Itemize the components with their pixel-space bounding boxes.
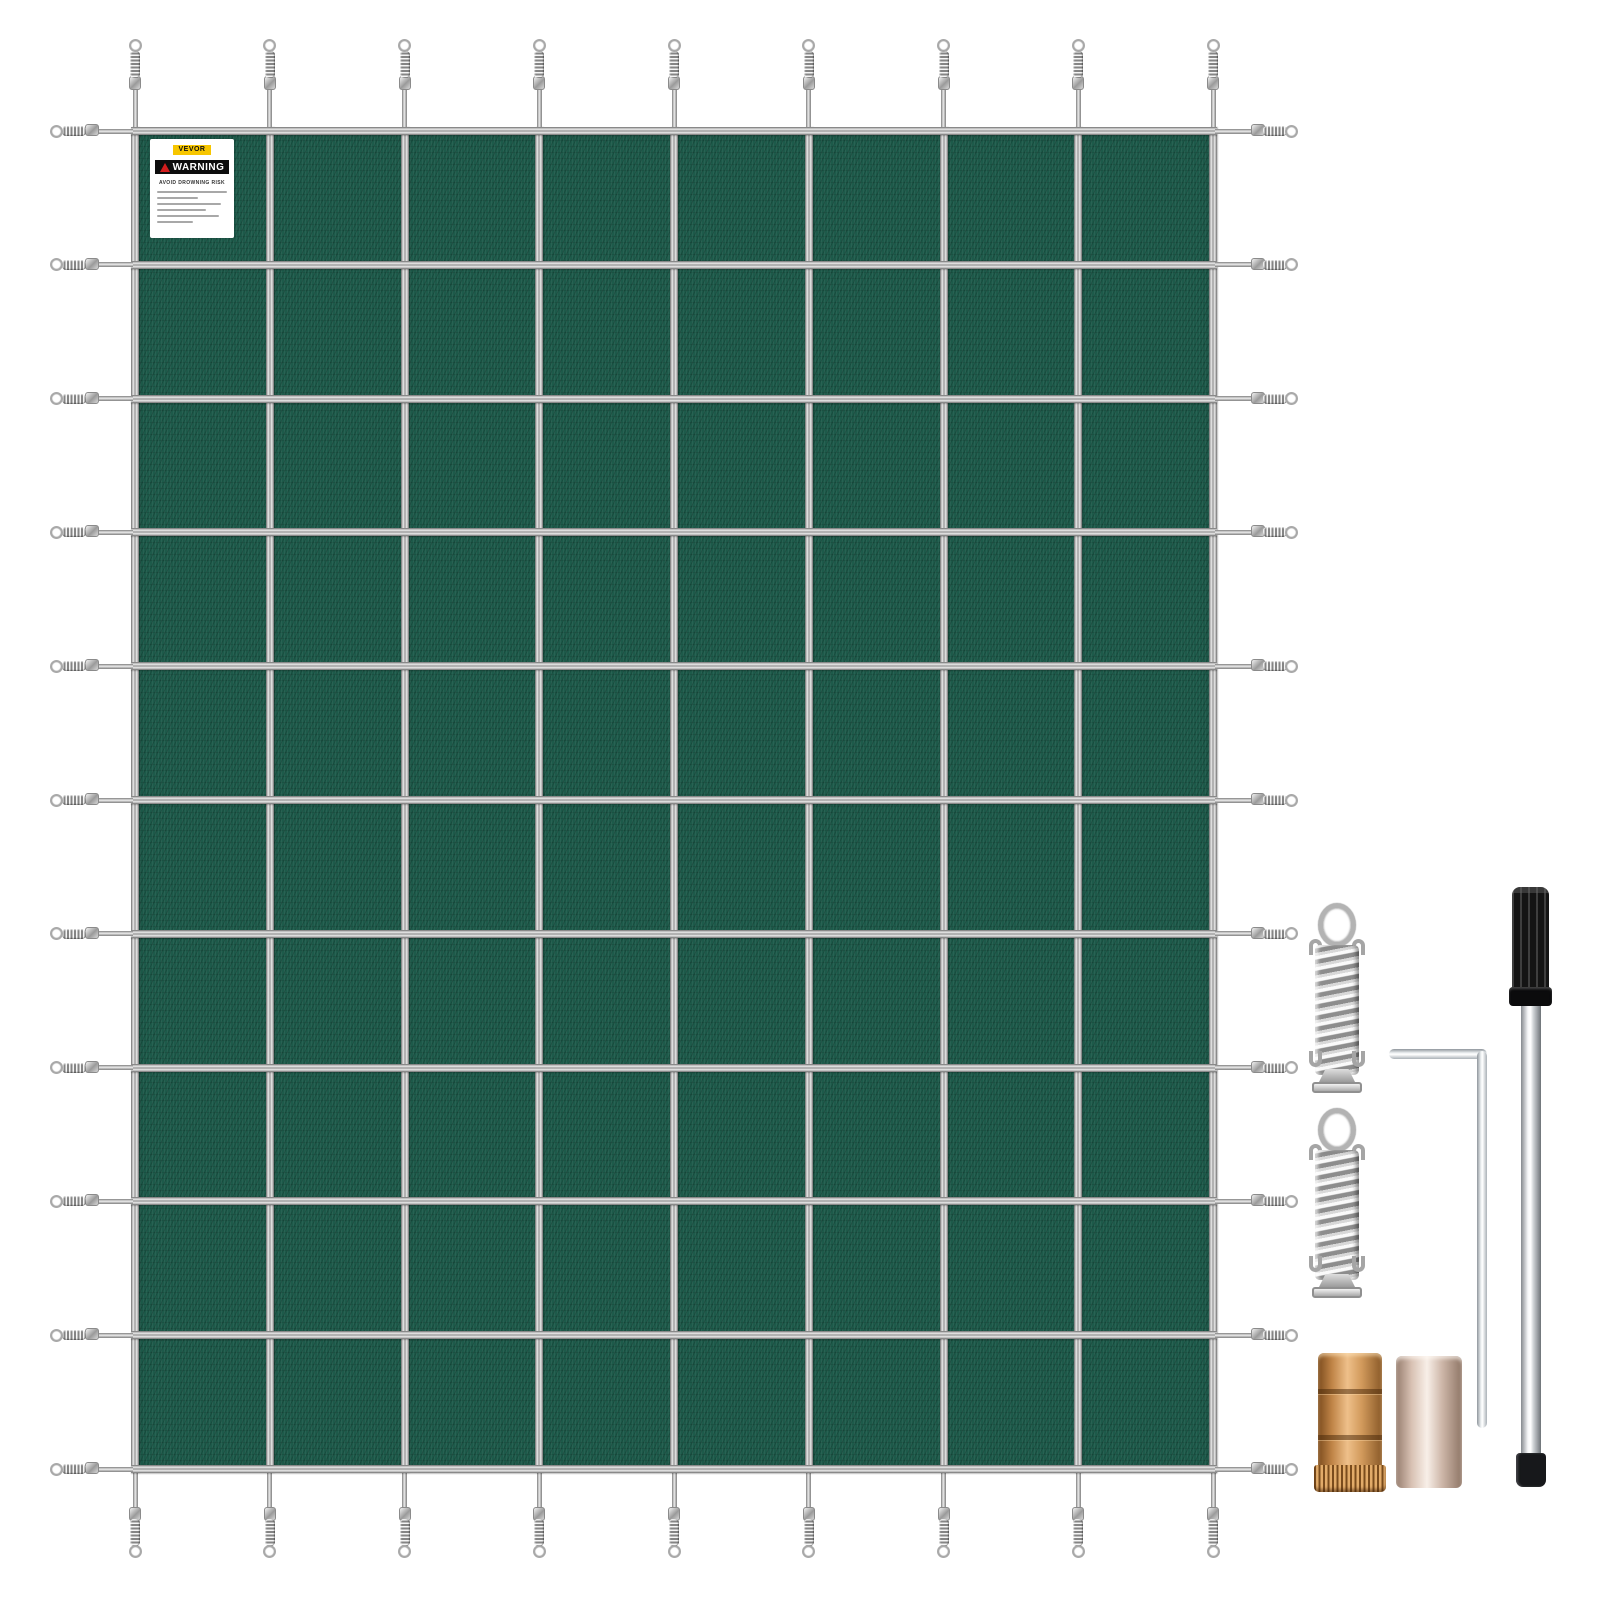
spring-clip xyxy=(129,76,141,90)
warning-banner: WARNING xyxy=(155,160,229,174)
strap-horizontal xyxy=(131,796,1217,804)
spring-coil xyxy=(1263,1330,1287,1340)
fine-print-line xyxy=(157,221,193,223)
spring-clip xyxy=(85,525,99,537)
fine-print-line xyxy=(157,197,198,199)
spring-coil xyxy=(62,1063,86,1073)
spring-coil xyxy=(804,51,814,78)
spring-strap xyxy=(537,88,542,130)
spring-coil xyxy=(1208,51,1218,78)
spring-clip xyxy=(533,76,545,90)
spring-clip xyxy=(85,1462,99,1474)
spring-strap xyxy=(133,88,138,130)
spring-clip xyxy=(85,1194,99,1206)
spring-ring xyxy=(50,794,63,807)
spring-coil xyxy=(1263,260,1287,270)
spring-clip xyxy=(85,1328,99,1340)
spring-ring xyxy=(937,1545,950,1558)
spring-strap xyxy=(97,129,133,134)
strap-horizontal xyxy=(131,528,1217,536)
spring-strap xyxy=(1215,530,1253,535)
spring-buckle xyxy=(1312,1287,1362,1298)
spring-clip xyxy=(1207,76,1219,90)
spring-strap xyxy=(806,1471,811,1509)
spring-strap xyxy=(1215,396,1253,401)
strap-horizontal xyxy=(131,1331,1217,1339)
spring-clip xyxy=(399,76,411,90)
spring-strap xyxy=(1215,1333,1253,1338)
spring-coil xyxy=(1073,1519,1083,1546)
strap-horizontal xyxy=(131,1465,1217,1473)
spring-coil xyxy=(62,394,86,404)
warning-triangle-icon xyxy=(160,163,170,172)
spring-strap xyxy=(1215,931,1253,936)
spring-ring xyxy=(50,1329,63,1342)
spring-clip xyxy=(85,258,99,270)
spring-coil xyxy=(62,661,86,671)
strap-horizontal xyxy=(131,1197,1217,1205)
rod-collar xyxy=(1509,987,1552,1006)
spring-ring xyxy=(1072,1545,1085,1558)
spring-strap xyxy=(1215,129,1253,134)
fine-print-line xyxy=(157,203,221,205)
spring-ring xyxy=(802,39,815,52)
spring-ring xyxy=(1285,1195,1298,1208)
spring-coil xyxy=(1208,1519,1218,1546)
spring-ring xyxy=(533,1545,546,1558)
spring-coil xyxy=(1263,661,1287,671)
spring-ring xyxy=(1072,39,1085,52)
spring-strap xyxy=(97,931,133,936)
product-image: VEVOR WARNING AVOID DROWNING RISK xyxy=(0,0,1600,1600)
spring-strap xyxy=(1215,798,1253,803)
spring-ring xyxy=(1285,1061,1298,1074)
spring-ring xyxy=(1285,125,1298,138)
warning-label: VEVOR WARNING AVOID DROWNING RISK xyxy=(150,139,234,238)
brand-badge: VEVOR xyxy=(173,145,211,155)
spring-hook xyxy=(1309,1256,1322,1272)
spring-clip xyxy=(85,793,99,805)
anchor-groove xyxy=(1318,1435,1382,1440)
strap-horizontal xyxy=(131,1064,1217,1072)
spring-strap xyxy=(402,88,407,130)
spring-strap xyxy=(672,88,677,130)
spring-strap xyxy=(97,798,133,803)
spring-strap xyxy=(97,262,133,267)
spring-strap xyxy=(1215,664,1253,669)
brass-anchor-knurled-base xyxy=(1314,1465,1386,1492)
spring-hook xyxy=(1309,1051,1322,1067)
spring-ring xyxy=(1285,660,1298,673)
spring-strap xyxy=(97,1467,133,1472)
spring-strap xyxy=(1211,1471,1216,1509)
spring-coil xyxy=(130,1519,140,1546)
spring-strap xyxy=(97,1065,133,1070)
spring-coil xyxy=(400,1519,410,1546)
spring-coil xyxy=(669,1519,679,1546)
spring-ring xyxy=(668,39,681,52)
hex-key-arm xyxy=(1389,1049,1487,1059)
hex-key-shaft xyxy=(1477,1051,1487,1428)
spring-coil xyxy=(1263,929,1287,939)
spring-coil xyxy=(62,795,86,805)
spring-ring xyxy=(263,1545,276,1558)
spring-ring xyxy=(1207,39,1220,52)
spring-strap xyxy=(97,1199,133,1204)
spring-ring xyxy=(50,258,63,271)
rod-tip xyxy=(1516,1453,1546,1487)
spring-clip xyxy=(85,659,99,671)
warning-subtitle: AVOID DROWNING RISK xyxy=(150,180,234,186)
spring-coil xyxy=(1263,1196,1287,1206)
spring-coil xyxy=(534,1519,544,1546)
spring-ring xyxy=(398,39,411,52)
spring-coil xyxy=(62,1330,86,1340)
fine-print-line xyxy=(157,191,227,193)
spring-coil xyxy=(1263,527,1287,537)
fine-print-line xyxy=(157,209,206,211)
brass-anchor-body xyxy=(1318,1353,1382,1467)
spring-coil xyxy=(534,51,544,78)
spring-clip xyxy=(1072,76,1084,90)
spring-coil xyxy=(265,51,275,78)
spring-ring xyxy=(533,39,546,52)
warning-title: WARNING xyxy=(173,162,225,173)
spring-strap xyxy=(97,664,133,669)
spring-ring xyxy=(50,1061,63,1074)
spring-coil xyxy=(62,260,86,270)
spring-coil xyxy=(62,527,86,537)
spring-strap xyxy=(1215,1199,1253,1204)
spring-ring xyxy=(1285,1463,1298,1476)
spring-strap xyxy=(1215,1065,1253,1070)
spring-ring xyxy=(129,1545,142,1558)
spring-ring xyxy=(802,1545,815,1558)
spring-coil xyxy=(1263,394,1287,404)
anchor-pin xyxy=(1421,1287,1438,1359)
spring-ring xyxy=(1285,526,1298,539)
spring-ring xyxy=(129,39,142,52)
spring-clip xyxy=(85,392,99,404)
spring-clip xyxy=(85,124,99,136)
spring-coil xyxy=(62,126,86,136)
spring-strap xyxy=(1215,1467,1253,1472)
spring-coil xyxy=(939,51,949,78)
spring-strap xyxy=(941,88,946,130)
spring-coil xyxy=(1073,51,1083,78)
spring-ring xyxy=(668,1545,681,1558)
spring-buckle xyxy=(1312,1082,1362,1093)
spring-ring xyxy=(1285,258,1298,271)
spring-strap xyxy=(267,1471,272,1509)
spring-ring xyxy=(50,526,63,539)
spring-coil xyxy=(400,51,410,78)
spring-strap xyxy=(1076,1471,1081,1509)
spring-hook xyxy=(1352,1256,1365,1272)
spring-strap xyxy=(806,88,811,130)
spring-clip xyxy=(668,76,680,90)
fine-print-line xyxy=(157,215,219,217)
spring-ring xyxy=(1285,794,1298,807)
spring-clip xyxy=(85,1061,99,1073)
spring-ring xyxy=(1285,1329,1298,1342)
spring-coil xyxy=(669,51,679,78)
spring-strap xyxy=(1211,88,1216,130)
spring-ring xyxy=(50,1463,63,1476)
spring-coil xyxy=(1263,1464,1287,1474)
spring-ring xyxy=(263,39,276,52)
strap-horizontal xyxy=(131,930,1217,938)
spring-strap xyxy=(672,1471,677,1509)
spring-clip xyxy=(803,76,815,90)
spring-strap xyxy=(537,1471,542,1509)
spring-strap xyxy=(1215,262,1253,267)
spring-coil xyxy=(62,1196,86,1206)
anchor-groove xyxy=(1318,1389,1382,1394)
spring-ring xyxy=(50,125,63,138)
spring-clip xyxy=(264,76,276,90)
spring-strap xyxy=(941,1471,946,1509)
rod-shaft xyxy=(1521,1006,1541,1456)
spring-ring xyxy=(937,39,950,52)
spring-clip xyxy=(938,76,950,90)
rod-handle xyxy=(1512,887,1549,989)
spring-coil xyxy=(265,1519,275,1546)
spring-strap xyxy=(402,1471,407,1509)
anchor-body xyxy=(1396,1356,1462,1488)
strap-horizontal xyxy=(131,261,1217,269)
tension-spring-2 xyxy=(1306,1108,1368,1300)
spring-coil xyxy=(1263,1063,1287,1073)
spring-strap xyxy=(97,530,133,535)
spring-coil xyxy=(1263,795,1287,805)
spring-strap xyxy=(97,396,133,401)
spring-ring xyxy=(1285,927,1298,940)
tension-spring-1 xyxy=(1306,903,1368,1095)
spring-loop xyxy=(1318,1108,1356,1152)
spring-coil xyxy=(1263,126,1287,136)
spring-ring xyxy=(50,927,63,940)
spring-strap xyxy=(97,1333,133,1338)
spring-ring xyxy=(50,1195,63,1208)
spring-hook xyxy=(1352,1051,1365,1067)
warning-fine-print xyxy=(157,191,227,227)
spring-coil xyxy=(130,51,140,78)
strap-horizontal xyxy=(131,662,1217,670)
spring-coil xyxy=(62,929,86,939)
strap-horizontal xyxy=(131,395,1217,403)
spring-coil xyxy=(939,1519,949,1546)
spring-ring xyxy=(398,1545,411,1558)
spring-strap xyxy=(133,1471,138,1509)
spring-loop xyxy=(1318,903,1356,947)
strap-horizontal xyxy=(131,127,1217,135)
spring-ring xyxy=(1285,392,1298,405)
spring-strap xyxy=(1076,88,1081,130)
spring-coil xyxy=(62,1464,86,1474)
spring-ring xyxy=(50,392,63,405)
spring-coil xyxy=(804,1519,814,1546)
spring-clip xyxy=(85,927,99,939)
spring-strap xyxy=(267,88,272,130)
spring-ring xyxy=(50,660,63,673)
spring-ring xyxy=(1207,1545,1220,1558)
